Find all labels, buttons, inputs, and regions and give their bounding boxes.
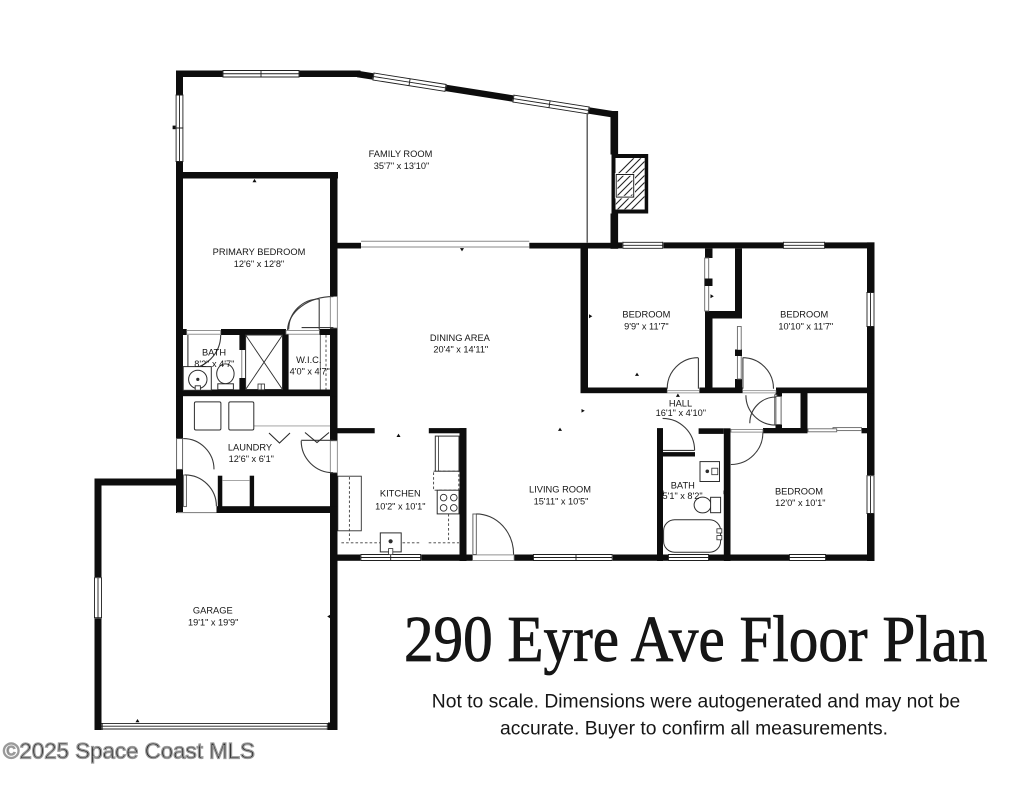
svg-text:9'9" x 11'7": 9'9" x 11'7" <box>624 321 669 331</box>
svg-text:5'1" x 8'2": 5'1" x 8'2" <box>663 491 703 501</box>
svg-text:20'4" x 14'11": 20'4" x 14'11" <box>433 345 488 355</box>
svg-text:KITCHEN: KITCHEN <box>380 489 421 499</box>
svg-text:12'6" x 6'1": 12'6" x 6'1" <box>229 454 274 464</box>
svg-text:12'0" x 10'1": 12'0" x 10'1" <box>775 498 825 508</box>
svg-text:GARAGE: GARAGE <box>193 606 233 616</box>
svg-text:4'0" x 4'7": 4'0" x 4'7" <box>290 366 330 376</box>
svg-text:10'10" x 11'7": 10'10" x 11'7" <box>778 321 833 331</box>
svg-text:10'2" x 10'1": 10'2" x 10'1" <box>375 502 425 512</box>
svg-text:HALL: HALL <box>669 398 692 408</box>
svg-text:BEDROOM: BEDROOM <box>780 310 828 320</box>
svg-text:BEDROOM: BEDROOM <box>775 486 823 496</box>
svg-text:PRIMARY BEDROOM: PRIMARY BEDROOM <box>213 247 306 257</box>
svg-text:12'6" x 12'8": 12'6" x 12'8" <box>234 259 284 269</box>
svg-text:DINING AREA: DINING AREA <box>430 333 491 343</box>
svg-text:BATH: BATH <box>671 481 695 491</box>
svg-text:16'1" x 4'10": 16'1" x 4'10" <box>656 408 706 418</box>
svg-text:BATH: BATH <box>202 347 226 357</box>
svg-text:19'1" x 19'9": 19'1" x 19'9" <box>188 618 238 628</box>
svg-text:8'2" x 4'7": 8'2" x 4'7" <box>194 359 234 369</box>
svg-text:Not to scale. Dimensions were: Not to scale. Dimensions were autogenera… <box>432 692 960 713</box>
svg-text:LIVING ROOM: LIVING ROOM <box>529 485 591 495</box>
svg-text:35'7" x 13'10": 35'7" x 13'10" <box>374 161 430 171</box>
svg-text:LAUNDRY: LAUNDRY <box>228 442 272 452</box>
svg-text:BEDROOM: BEDROOM <box>622 310 670 320</box>
svg-text:W.I.C.: W.I.C. <box>296 355 321 365</box>
svg-text:15'11" x 10'5": 15'11" x 10'5" <box>534 497 589 507</box>
svg-text:©2025 Space Coast MLS: ©2025 Space Coast MLS <box>3 739 255 764</box>
svg-text:FAMILY ROOM: FAMILY ROOM <box>369 149 433 159</box>
svg-text:accurate. Buyer to confirm all: accurate. Buyer to confirm all measureme… <box>500 719 888 740</box>
svg-text:290 Eyre Ave Floor Plan: 290 Eyre Ave Floor Plan <box>404 602 988 676</box>
